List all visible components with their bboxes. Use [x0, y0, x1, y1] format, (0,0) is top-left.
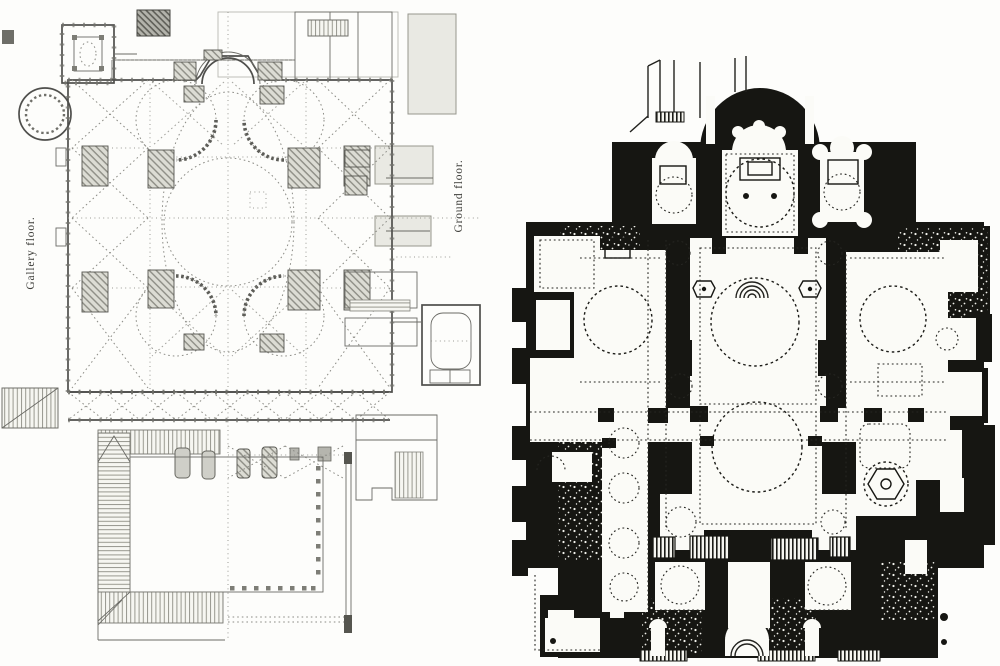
- aisle-vault-crosses: [72, 80, 390, 388]
- ground-floor-label: Ground floor.: [453, 159, 465, 232]
- north-annex-rooms: [112, 10, 392, 80]
- exonarthex-and-buttresses: [98, 430, 345, 479]
- atrium-east-wall: [228, 452, 352, 633]
- round-building: [19, 88, 71, 140]
- adjacent-buildings-faint: [218, 12, 456, 257]
- right-plan-black-poche: [500, 0, 1000, 666]
- main-church-walls: [68, 50, 392, 392]
- southwest-annex-building: [356, 415, 437, 500]
- nave-dome-dashed-geometry: [136, 80, 324, 356]
- left-plan-gallery-and-ground-floor: Gallery floor. Ground floor.: [0, 0, 500, 666]
- gallery-floor-label: Gallery floor.: [25, 216, 37, 289]
- narthex: [68, 392, 390, 420]
- east-vestibule-room: [392, 305, 480, 385]
- engraving-plate: Gallery floor. Ground floor.: [0, 0, 1000, 666]
- atrium-colonnade-columns: [230, 466, 321, 591]
- baptistery-building: [62, 25, 137, 83]
- dome-piers-hatched: [82, 86, 370, 352]
